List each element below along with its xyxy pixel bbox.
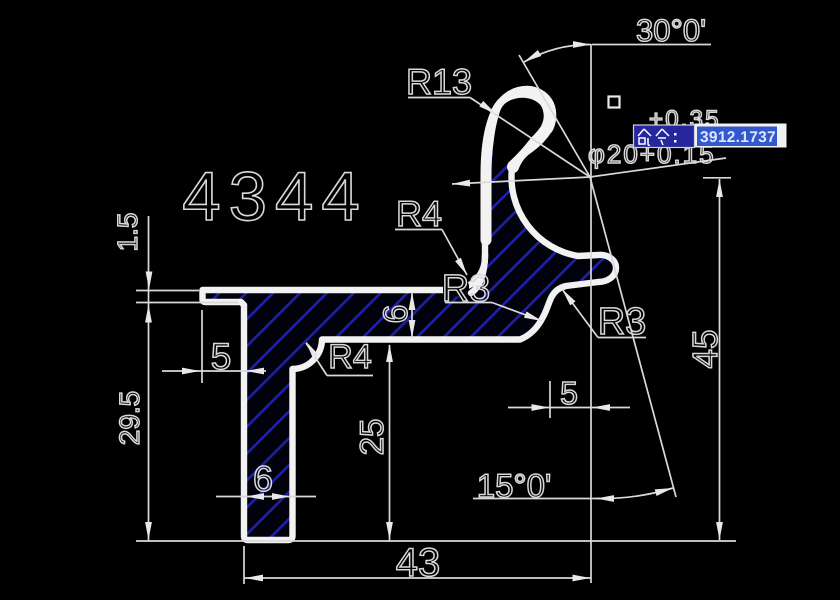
svg-text:3912.1737: 3912.1737 (700, 129, 776, 146)
svg-text:4344: 4344 (182, 158, 368, 235)
svg-text:6: 6 (253, 458, 273, 499)
svg-text:R3: R3 (442, 268, 491, 310)
svg-text:43: 43 (396, 541, 441, 585)
svg-text:45: 45 (686, 330, 725, 369)
svg-text:6: 6 (377, 305, 415, 324)
svg-text:R3: R3 (598, 301, 647, 343)
svg-text:R4: R4 (396, 193, 442, 234)
svg-text:25: 25 (353, 419, 390, 456)
svg-text:1.5: 1.5 (112, 213, 143, 252)
svg-text:R4: R4 (328, 338, 371, 376)
svg-text:5: 5 (560, 375, 578, 411)
svg-text:R13: R13 (406, 61, 472, 102)
svg-text:5: 5 (211, 336, 232, 377)
svg-text:30°0': 30°0' (636, 13, 706, 48)
svg-text:29.5: 29.5 (114, 391, 145, 446)
svg-text:15°0': 15°0' (477, 467, 552, 504)
